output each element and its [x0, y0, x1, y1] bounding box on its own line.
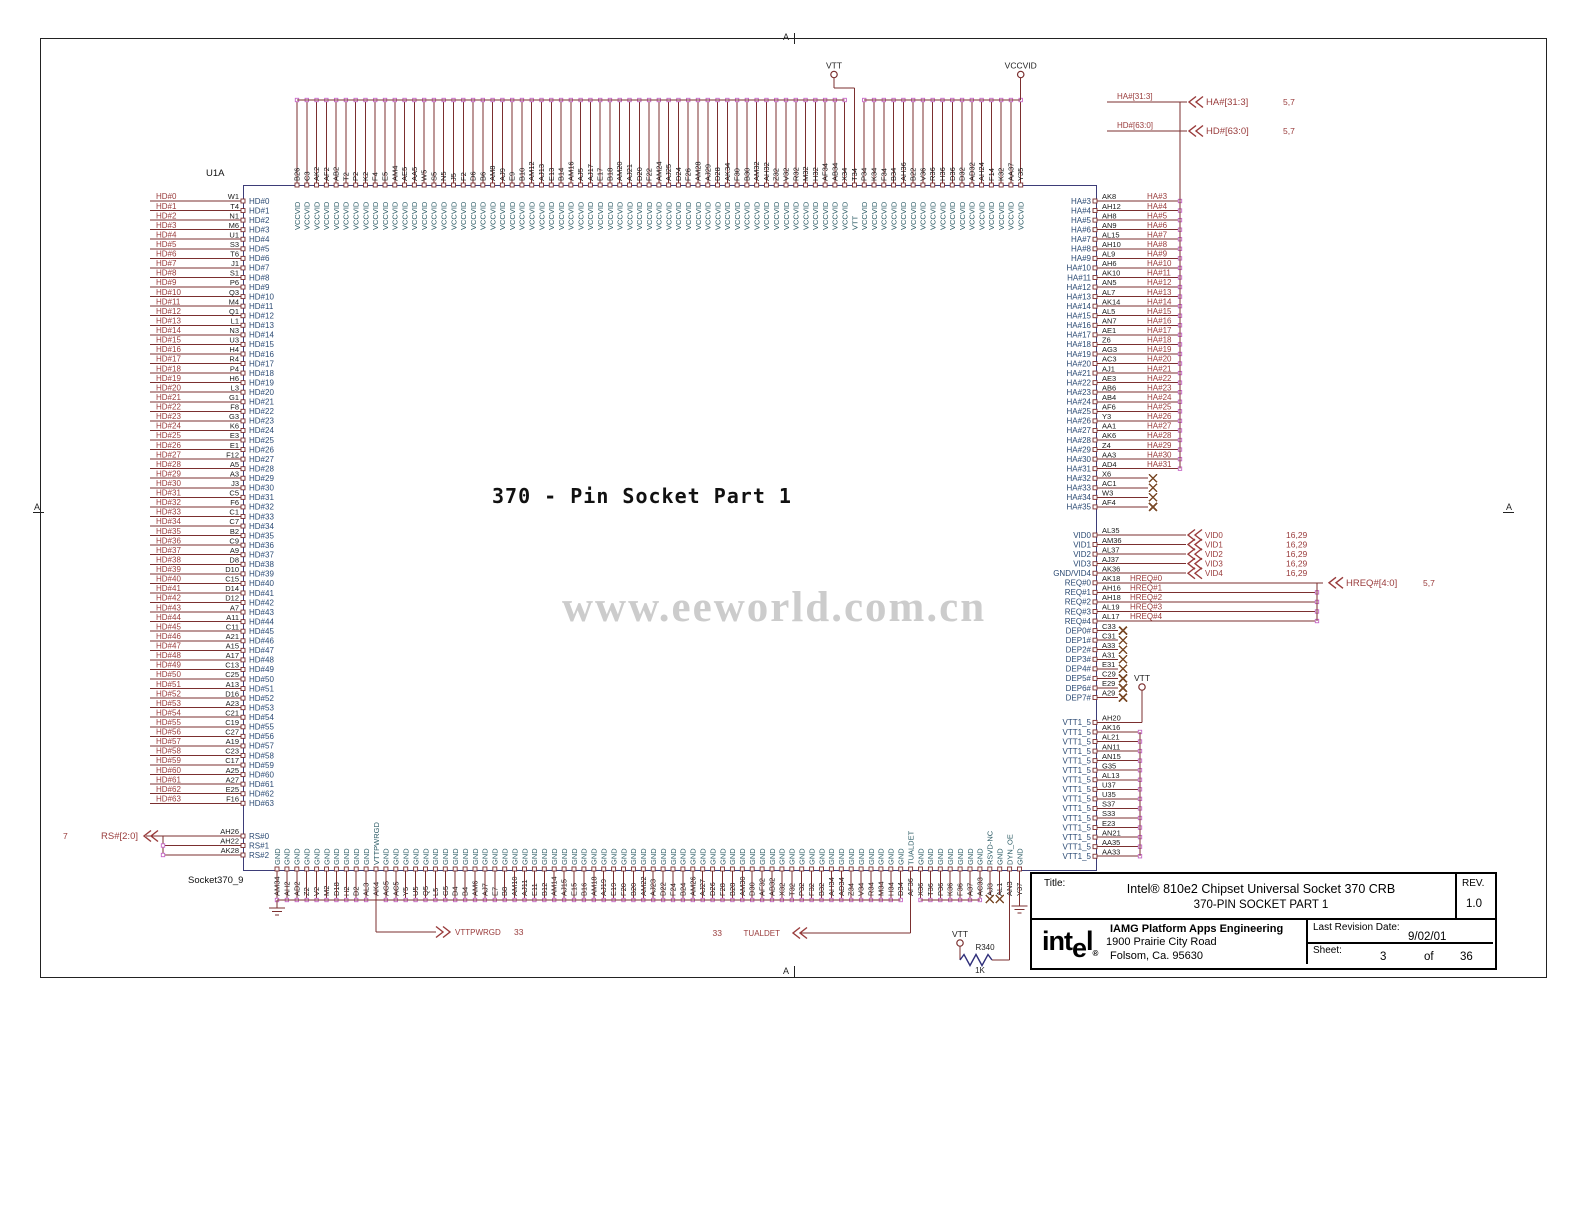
net-label: HD#1	[156, 202, 177, 211]
pin-name: VTT1_5	[1063, 833, 1092, 842]
pin-connection-square	[241, 362, 245, 366]
pin-number: E23	[1102, 819, 1115, 828]
resistor-ref: R340	[975, 943, 995, 952]
pin-connection-square	[716, 183, 720, 187]
pin-connection-square	[241, 266, 245, 270]
pin-connection-square	[569, 183, 573, 187]
pin-number: C17	[225, 756, 239, 765]
pin-name: VCCVID	[958, 201, 967, 230]
net-label: HD#35	[156, 527, 181, 536]
pin-connection-square	[755, 183, 759, 187]
pin-connection-square	[241, 390, 245, 394]
pin-name: GND	[679, 848, 688, 865]
pin-number: J1	[231, 259, 239, 268]
pin-name: DYN_OE	[1005, 834, 1014, 865]
pin-name: DEP3#	[1066, 655, 1092, 664]
pin-name: HD#47	[249, 646, 274, 655]
pin-name: VCCVID	[371, 201, 380, 230]
net-label: HA#30	[1147, 450, 1172, 459]
pin-name: VCCVID	[723, 201, 732, 230]
pin-name: HD#61	[249, 780, 274, 789]
pin-number: F8	[230, 403, 239, 412]
pin-number: AH12	[1102, 202, 1121, 211]
pin-connection-square	[849, 867, 853, 871]
pin-name: GND	[887, 848, 896, 865]
pin-connection-square	[637, 183, 641, 187]
net-label: HD#[63:0]	[1117, 121, 1153, 130]
pin-name: HD#48	[249, 656, 274, 665]
pin-connection-square	[1093, 657, 1097, 661]
pin-name: GND	[530, 848, 539, 865]
net-label: HD#3	[156, 221, 177, 230]
pin-connection-square	[493, 867, 497, 871]
pin-connection-square	[1093, 400, 1097, 404]
offpage-chevron-left	[1195, 539, 1202, 550]
resistor-r340	[960, 955, 992, 966]
pin-connection-square	[628, 183, 632, 187]
pin-connection-square	[241, 844, 245, 848]
pin-name: VCCVID	[645, 201, 654, 230]
net-label: HD#28	[156, 460, 181, 469]
pin-name: VCCVID	[342, 201, 351, 230]
pin-connection-square	[241, 285, 245, 289]
offpage-chevron-left	[1195, 568, 1202, 579]
pin-number: M4	[229, 297, 239, 306]
pin-connection-square	[275, 867, 279, 871]
pin-connection-square	[241, 342, 245, 346]
pin-name: VID1	[1073, 540, 1091, 549]
pin-name: HD#26	[249, 445, 274, 454]
pin-name: VCCVID	[987, 201, 996, 230]
pin-number: H4	[229, 345, 239, 354]
pin-number: AF4	[1102, 498, 1116, 507]
net-label: HD#52	[156, 689, 181, 698]
pin-connection-square	[241, 419, 245, 423]
pin-connection-square	[686, 183, 690, 187]
net-label: HD#51	[156, 680, 181, 689]
pin-connection-square	[1093, 787, 1097, 791]
pin-connection-square	[938, 867, 942, 871]
pin-connection-square	[681, 867, 685, 871]
pin-connection-square	[241, 438, 245, 442]
net-label: HD#25	[156, 431, 181, 440]
pin-number: B14	[557, 168, 566, 181]
pin-name: VCCVID	[880, 201, 889, 230]
pin-name: VCCVID	[684, 201, 693, 230]
pin-connection-square	[241, 610, 245, 614]
pin-name: GND	[966, 848, 975, 865]
pin-name: HA#11	[1067, 273, 1091, 282]
pin-connection-square	[461, 183, 465, 187]
pin-name: VCCVID	[694, 201, 703, 230]
pin-name: HA#24	[1067, 398, 1092, 407]
pin-connection-square	[354, 183, 358, 187]
pin-number: B22	[909, 168, 918, 181]
pin-name: HD#2	[249, 216, 270, 225]
pin-connection-square	[989, 183, 993, 187]
pin-name: VCCVID	[332, 201, 341, 230]
net-label: HD#59	[156, 756, 181, 765]
pin-connection-square	[592, 867, 596, 871]
pin-connection-square	[1093, 218, 1097, 222]
pin-connection-square	[241, 495, 245, 499]
pin-connection-square	[324, 183, 328, 187]
pin-connection-square	[241, 620, 245, 624]
pin-name: VCCVID	[322, 201, 331, 230]
pin-number: AG3	[1102, 345, 1117, 354]
pin-connection-square	[1093, 552, 1097, 556]
pin-number: A7	[230, 603, 239, 612]
pin-name: HA#29	[1067, 445, 1092, 454]
pin-connection-square	[647, 183, 651, 187]
pin-connection-square	[1093, 304, 1097, 308]
net-label: HD#40	[156, 575, 181, 584]
pin-connection-square	[882, 183, 886, 187]
pin-name: GND	[441, 848, 450, 865]
pin-number: C19	[225, 718, 239, 727]
pin-connection-square	[374, 867, 378, 871]
pin-name: HA#32	[1067, 474, 1092, 483]
pin-connection-square	[1093, 352, 1097, 356]
net-label: HREQ#2	[1130, 593, 1163, 602]
pin-number: T4	[230, 202, 239, 211]
resistor-value: 1K	[975, 966, 985, 975]
net-label: HD#6	[156, 250, 177, 259]
pin-name: HD#15	[249, 340, 274, 349]
net-label: HA#18	[1147, 336, 1172, 345]
pin-connection-square	[424, 867, 428, 871]
pin-name: HA#20	[1067, 359, 1092, 368]
pin-connection-square	[960, 183, 964, 187]
pin-connection-square	[354, 867, 358, 871]
pin-connection-square	[241, 381, 245, 385]
pin-name: GND	[788, 848, 797, 865]
pin-name: VCCVID	[1017, 201, 1026, 230]
pin-name: VTT1_5	[1063, 804, 1092, 813]
junction-hook	[161, 844, 164, 847]
offpage-chevron-left	[1195, 530, 1202, 541]
pin-name: GND	[540, 848, 549, 865]
pin-connection-square	[334, 183, 338, 187]
pin-number: AA3	[1102, 450, 1116, 459]
pin-number: E3	[230, 431, 239, 440]
pin-connection-square	[241, 304, 245, 308]
pin-connection-square	[1093, 275, 1097, 279]
pin-number: AA35	[1102, 838, 1120, 847]
pin-name: HA#4	[1071, 206, 1092, 215]
pin-name: VCCVID	[831, 201, 840, 230]
pin-name: VCCVID	[449, 201, 458, 230]
pin-name: HA#6	[1071, 225, 1092, 234]
pin-connection-square	[1093, 749, 1097, 753]
pin-connection-square	[1093, 768, 1097, 772]
pin-name: VTT1_5	[1063, 718, 1092, 727]
pin-name: VTT1_5	[1063, 785, 1092, 794]
pin-name: VCCVID	[420, 201, 429, 230]
pin-connection-square	[721, 867, 725, 871]
net-label: HD#45	[156, 622, 181, 631]
pin-number: B26	[293, 168, 302, 181]
pin-name: VCCVID	[625, 201, 634, 230]
pin-connection-square	[363, 183, 367, 187]
pin-name: GND	[451, 848, 460, 865]
net-label: VID1	[1205, 541, 1223, 550]
pin-number: AJ29	[703, 164, 712, 181]
pin-number: S5	[429, 172, 438, 181]
pin-number: AK8	[1102, 192, 1116, 201]
pin-connection-square	[879, 867, 883, 871]
pin-connection-square	[1093, 505, 1097, 509]
pin-name: VCCVID	[440, 201, 449, 230]
pin-connection-square	[618, 183, 622, 187]
pin-name: VCCVID	[655, 201, 664, 230]
pin-name: VCCVID	[361, 201, 370, 230]
pin-name: HD#62	[249, 790, 274, 799]
net-label: HD#49	[156, 661, 181, 670]
net-label: HA#23	[1147, 383, 1172, 392]
pin-number: AN7	[1102, 316, 1117, 325]
net-label: HA#14	[1147, 297, 1172, 306]
pin-number: AK2	[312, 167, 321, 181]
net-label: HD#11	[156, 297, 181, 306]
net-label: HD#23	[156, 412, 181, 421]
pin-name: HA#8	[1071, 245, 1092, 254]
pin-name: HA#27	[1067, 426, 1092, 435]
pin-number: J5	[449, 173, 458, 181]
pin-number: AM8	[488, 166, 497, 181]
pin-number: Z6	[1102, 336, 1111, 345]
pin-number: C3	[302, 171, 311, 181]
pin-number: A9	[230, 546, 239, 555]
pin-number: AH16	[1102, 584, 1121, 593]
pin-connection-square	[241, 371, 245, 375]
pin-number: K34	[870, 168, 879, 181]
pin-connection-square	[1093, 266, 1097, 270]
pin-name: REQ#0	[1065, 579, 1092, 588]
pin-name: GND	[669, 848, 678, 865]
net-label: HD#32	[156, 498, 181, 507]
net-label: HD#5	[156, 240, 177, 249]
pin-number: AH26	[220, 827, 239, 836]
pin-connection-square	[241, 601, 245, 605]
pin-name: GND	[1015, 848, 1024, 865]
pin-name: VCCVID	[518, 201, 527, 230]
net-label: HD#38	[156, 555, 181, 564]
pin-number: AJ5	[576, 168, 585, 181]
pin-name: VID0	[1073, 531, 1091, 540]
net-label: HD#22	[156, 403, 181, 412]
pin-name: VCCVID	[840, 201, 849, 230]
pin-number: D32	[958, 167, 967, 181]
pin-connection-square	[804, 183, 808, 187]
pin-connection-square	[241, 629, 245, 633]
net-label: HA#9	[1147, 250, 1168, 259]
pin-connection-square	[241, 514, 245, 518]
pin-name: VCCVID	[293, 201, 302, 230]
pin-connection-square	[241, 467, 245, 471]
pin-connection-square	[334, 867, 338, 871]
pin-name: VCCVID	[635, 201, 644, 230]
pin-name: VCCVID	[537, 201, 546, 230]
pin-number: AL9	[1102, 250, 1115, 259]
pin-number: Y35	[1016, 168, 1025, 181]
pin-connection-square	[520, 183, 524, 187]
pin-number: AN11	[1102, 742, 1120, 751]
pin-connection-square	[241, 457, 245, 461]
pin-number: R32	[791, 167, 800, 181]
pin-name: HD#29	[249, 474, 274, 483]
sheet-ref: 16,29	[1286, 540, 1308, 550]
pin-connection-square	[1018, 867, 1022, 871]
pin-connection-square	[1093, 247, 1097, 251]
pin-name: HA#10	[1067, 264, 1092, 273]
pin-number: R36	[928, 167, 937, 181]
pin-number: AN9	[1102, 221, 1117, 230]
net-label: HREQ#4	[1130, 612, 1163, 621]
pin-name: HD#22	[249, 407, 274, 416]
pin-connection-square	[810, 867, 814, 871]
pin-connection-square	[241, 333, 245, 337]
pin-name: VCCVID	[792, 201, 801, 230]
net-label: HD#0	[156, 192, 177, 201]
pin-name: RS#0	[249, 832, 270, 841]
pin-connection-square	[325, 867, 329, 871]
net-label: HD#31	[156, 489, 181, 498]
pin-connection-square	[1093, 285, 1097, 289]
pin-connection-square	[532, 867, 536, 871]
pin-connection-square	[770, 867, 774, 871]
pin-name: GND	[996, 848, 1005, 865]
net-label: HA#20	[1147, 355, 1172, 364]
pin-name: REQ#3	[1065, 607, 1092, 616]
bus-connector-hreq: HREQ#[4:0]	[1346, 578, 1397, 589]
pin-connection-square	[1093, 778, 1097, 782]
pin-name: VID3	[1073, 559, 1091, 568]
pin-connection-square	[241, 658, 245, 662]
pin-connection-square	[1093, 237, 1097, 241]
pin-name: GND	[471, 848, 480, 865]
pin-name: VCCVID	[547, 201, 556, 230]
pin-connection-square	[1093, 826, 1097, 830]
pin-number: AF2	[322, 167, 331, 181]
pin-connection-square	[999, 183, 1003, 187]
pin-name: GND	[946, 848, 955, 865]
pin-number: AB34	[830, 163, 839, 181]
pin-name: VCCVID	[303, 201, 312, 230]
pin-connection-square	[241, 581, 245, 585]
pin-connection-square	[901, 183, 905, 187]
pin-number: AL13	[1102, 771, 1120, 780]
pin-name: HA#19	[1067, 350, 1092, 359]
pin-number: F30	[733, 168, 742, 181]
pin-connection-square	[1093, 845, 1097, 849]
pin-number: AL19	[1102, 603, 1120, 612]
pin-name: HD#4	[249, 235, 270, 244]
pin-connection-square	[241, 256, 245, 260]
pin-number: A5	[230, 460, 239, 469]
pin-name: GND	[332, 848, 341, 865]
pin-connection-square	[1093, 342, 1097, 346]
pin-number: E29	[1102, 679, 1115, 688]
net-label: HA#5	[1147, 211, 1168, 220]
pin-number: C25	[225, 670, 239, 679]
pin-name: VCCVID	[704, 201, 713, 230]
pin-connection-square	[562, 867, 566, 871]
net-label: HD#56	[156, 728, 181, 737]
pin-number: N1	[229, 211, 239, 220]
pin-name: HD#38	[249, 560, 274, 569]
pin-connection-square	[241, 314, 245, 318]
pin-number: AH20	[1102, 714, 1121, 723]
pin-connection-square	[998, 867, 1002, 871]
pin-name: VID2	[1073, 550, 1091, 559]
pin-number: S3	[230, 240, 239, 249]
pin-name: VCCVID	[479, 201, 488, 230]
pin-name: HA#31	[1067, 464, 1092, 473]
pin-name: VCCVID	[762, 201, 771, 230]
pin-name: HD#20	[249, 388, 274, 397]
net-label: HD#39	[156, 565, 181, 574]
pin-name: VCCVID	[889, 201, 898, 230]
sheet-ref: 33	[713, 928, 723, 938]
pin-connection-square	[1093, 314, 1097, 318]
pin-connection-square	[305, 867, 309, 871]
pin-name: HD#40	[249, 579, 274, 588]
pin-connection-square	[241, 543, 245, 547]
pin-connection-square	[859, 867, 863, 871]
pin-name: GND	[708, 848, 717, 865]
pin-name: VCCVID	[400, 201, 409, 230]
pin-connection-square	[241, 352, 245, 356]
pin-connection-square	[241, 687, 245, 691]
pin-connection-square	[1093, 720, 1097, 724]
power-symbol-circle	[831, 71, 837, 77]
pin-number: AB2	[332, 167, 341, 181]
net-label: HA#24	[1147, 393, 1172, 402]
pin-name: HD#28	[249, 464, 274, 473]
net-label: HD#44	[156, 613, 181, 622]
pin-connection-square	[241, 476, 245, 480]
pin-connection-square	[829, 867, 833, 871]
net-label: HA#27	[1147, 422, 1172, 431]
schematic-canvas: HD#0W1HD#0HD#1T4HD#1HD#2N1HD#2HD#3M6HD#3…	[0, 0, 1584, 1223]
pin-connection-square	[1093, 638, 1097, 642]
pin-connection-square	[612, 867, 616, 871]
pin-name: DEP1#	[1066, 636, 1092, 645]
pin-connection-square	[1093, 333, 1097, 337]
net-label: HD#33	[156, 508, 181, 517]
pin-number: A13	[226, 680, 239, 689]
net-label: HD#62	[156, 785, 181, 794]
pin-name: VCCVID	[1007, 201, 1016, 230]
pin-connection-square	[1093, 676, 1097, 680]
pin-name: HD#34	[249, 522, 274, 531]
pin-name: GND	[738, 848, 747, 865]
pin-name: HD#53	[249, 703, 274, 712]
pin-name: VCCVID	[909, 201, 918, 230]
pin-name: VCCVID	[606, 201, 615, 230]
pin-number: C7	[229, 517, 239, 526]
net-label: VID2	[1205, 550, 1223, 559]
pin-number: B2	[230, 527, 239, 536]
pin-connection-square	[919, 867, 923, 871]
pin-name: VCCVID	[391, 201, 400, 230]
pin-number: AH32	[762, 162, 771, 181]
pin-number: K2	[361, 172, 370, 181]
junction-hook	[161, 853, 164, 856]
pin-name: HD#45	[249, 627, 274, 636]
pin-name: VCCVID	[713, 201, 722, 230]
